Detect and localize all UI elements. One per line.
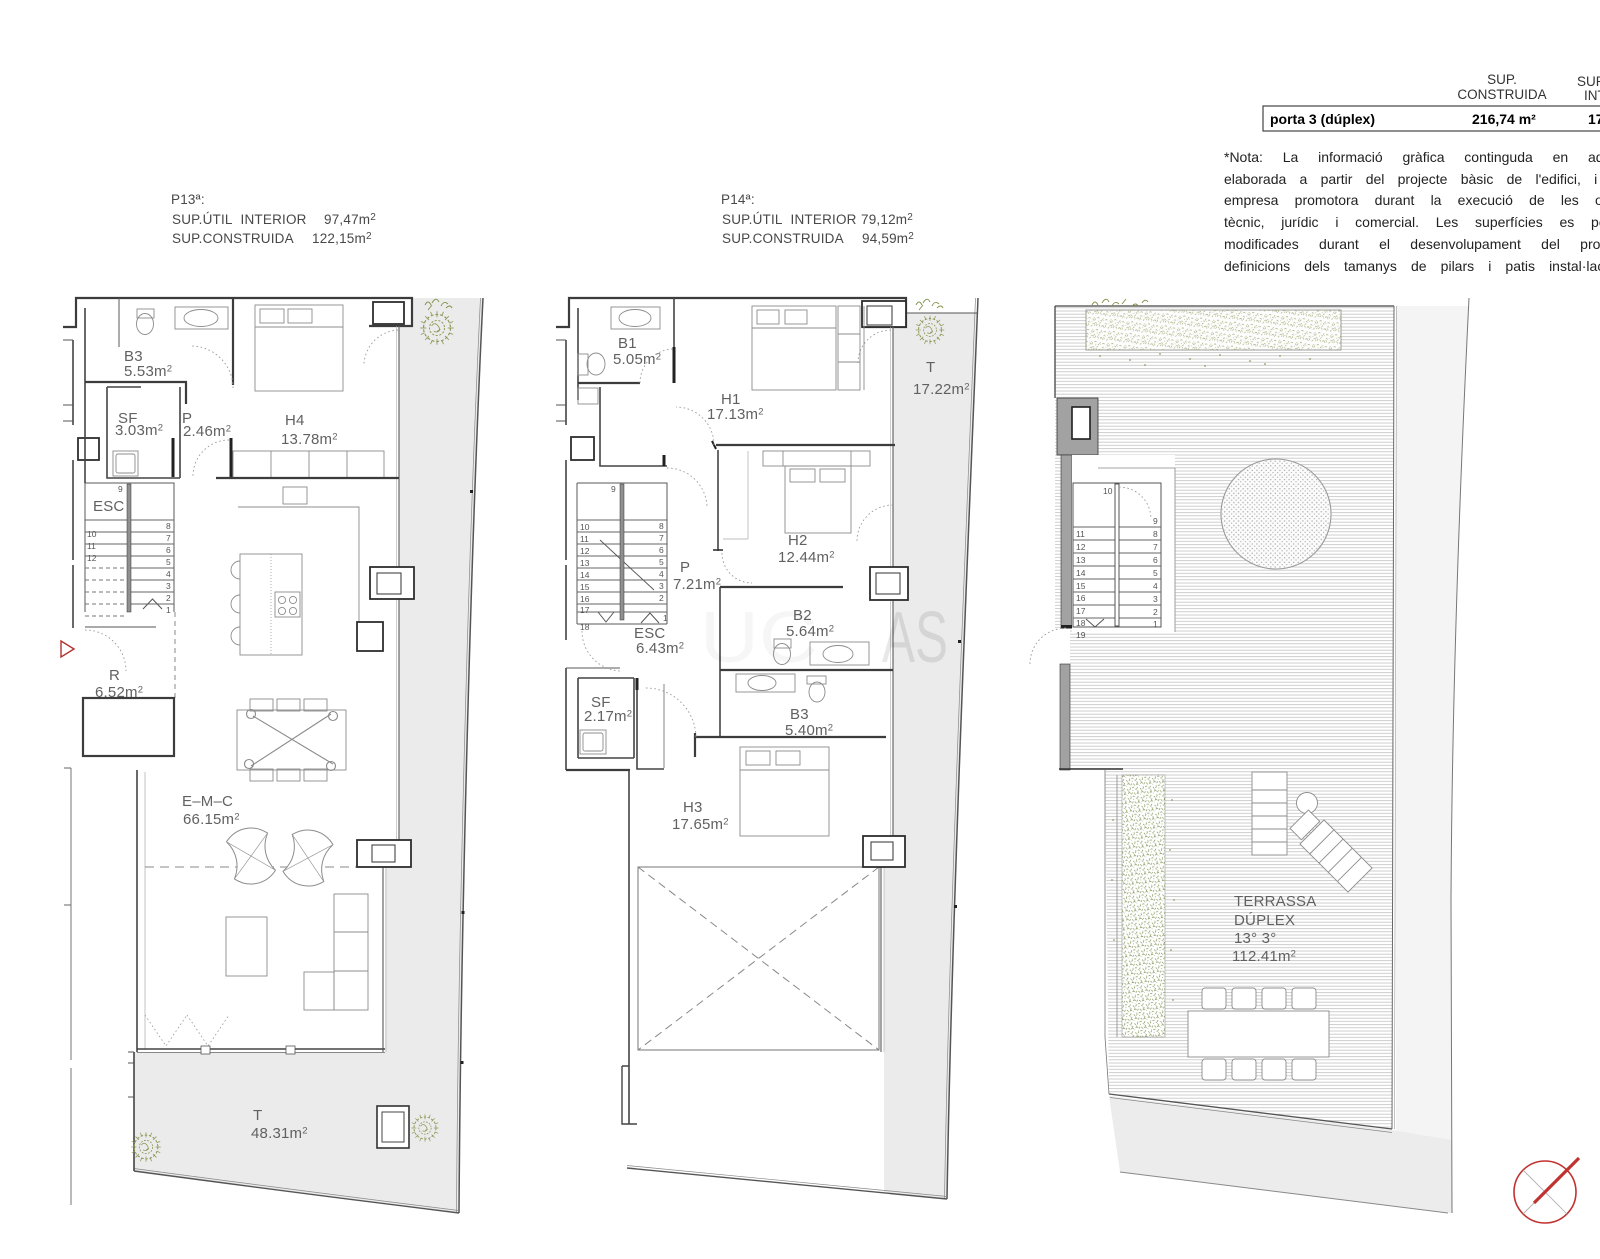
svg-text:97,47m2: 97,47m2 — [324, 212, 376, 227]
svg-text:5.40m2: 5.40m2 — [785, 722, 833, 739]
svg-text:P13ª:: P13ª: — [171, 192, 205, 207]
svg-text:8: 8 — [166, 521, 171, 531]
svg-text:SUP.: SUP. — [1577, 74, 1600, 89]
svg-text:B3: B3 — [790, 706, 809, 723]
svg-text:48.31m2: 48.31m2 — [251, 1125, 308, 1142]
svg-text:1: 1 — [166, 605, 171, 615]
svg-text:13: 13 — [1076, 555, 1086, 565]
svg-text:3: 3 — [1153, 594, 1158, 604]
svg-text:11: 11 — [580, 534, 589, 544]
svg-text:17.13m2: 17.13m2 — [707, 406, 764, 423]
svg-text:6.43m2: 6.43m2 — [636, 640, 684, 657]
svg-text:12: 12 — [87, 553, 97, 563]
svg-text:6: 6 — [1153, 555, 1158, 565]
svg-text:122,15m2: 122,15m2 — [312, 231, 372, 246]
svg-text:17: 17 — [1588, 111, 1600, 127]
svg-text:9: 9 — [118, 484, 123, 494]
svg-text:13.78m2: 13.78m2 — [281, 431, 338, 448]
svg-text:H4: H4 — [285, 412, 305, 429]
svg-text:7: 7 — [659, 533, 664, 543]
svg-text:2: 2 — [166, 593, 171, 603]
svg-text:18: 18 — [1076, 618, 1086, 628]
svg-text:2: 2 — [1153, 607, 1158, 617]
svg-text:10: 10 — [87, 529, 97, 539]
svg-text:SUP.ÚTIL INTERIOR: SUP.ÚTIL INTERIOR — [172, 212, 307, 227]
svg-text:14: 14 — [580, 570, 590, 580]
svg-text:SUP.ÚTIL INTERIOR: SUP.ÚTIL INTERIOR — [722, 212, 857, 227]
svg-text:17.22m2: 17.22m2 — [913, 381, 970, 398]
svg-text:12.44m2: 12.44m2 — [778, 549, 835, 566]
svg-text:16: 16 — [580, 594, 590, 604]
svg-text:E–M–C: E–M–C — [182, 793, 233, 810]
svg-text:10: 10 — [580, 522, 590, 532]
svg-text:15: 15 — [1076, 581, 1086, 591]
svg-text:9: 9 — [1153, 516, 1158, 526]
svg-text:7: 7 — [1153, 542, 1158, 552]
svg-text:3.03m2: 3.03m2 — [115, 422, 163, 439]
svg-text:8: 8 — [1153, 529, 1158, 539]
svg-text:DÚPLEX: DÚPLEX — [1234, 912, 1295, 929]
svg-text:11: 11 — [87, 541, 96, 551]
svg-text:UC: UC — [700, 598, 818, 678]
svg-text:12: 12 — [580, 546, 590, 556]
svg-text:3: 3 — [166, 581, 171, 591]
svg-text:17: 17 — [1076, 606, 1086, 616]
svg-text:4: 4 — [659, 569, 664, 579]
svg-text:11: 11 — [1076, 529, 1085, 539]
svg-text:12: 12 — [1076, 542, 1086, 552]
svg-text:ESC: ESC — [93, 498, 124, 515]
svg-text:H3: H3 — [683, 799, 703, 816]
svg-text:4: 4 — [1153, 581, 1158, 591]
svg-text:P: P — [680, 559, 690, 576]
svg-text:6: 6 — [659, 545, 664, 555]
svg-text:B1: B1 — [618, 335, 637, 352]
svg-text:SUP.: SUP. — [1487, 72, 1517, 87]
svg-text:H2: H2 — [788, 532, 808, 549]
svg-text:15: 15 — [580, 582, 590, 592]
svg-text:7.21m2: 7.21m2 — [673, 576, 721, 593]
svg-text:2.46m2: 2.46m2 — [183, 423, 231, 440]
svg-text:P14ª:: P14ª: — [721, 192, 755, 207]
svg-text:4: 4 — [166, 569, 171, 579]
svg-text:10: 10 — [1103, 486, 1113, 496]
svg-text:6: 6 — [166, 545, 171, 555]
svg-text:3: 3 — [659, 581, 664, 591]
svg-text:6.52m2: 6.52m2 — [95, 684, 143, 701]
svg-text:17.65m2: 17.65m2 — [672, 816, 729, 833]
svg-text:T: T — [926, 359, 935, 376]
svg-text:79,12m2: 79,12m2 — [861, 212, 913, 227]
svg-text:112.41m2: 112.41m2 — [1232, 948, 1296, 965]
svg-text:5: 5 — [1153, 568, 1158, 578]
svg-text:SUP.CONSTRUIDA: SUP.CONSTRUIDA — [722, 231, 844, 246]
svg-text:7: 7 — [166, 533, 171, 543]
svg-text:19: 19 — [1076, 630, 1086, 640]
svg-text:1: 1 — [663, 613, 668, 623]
svg-text:2: 2 — [659, 593, 664, 603]
svg-text:66.15m2: 66.15m2 — [183, 811, 240, 828]
svg-text:TERRASSA: TERRASSA — [1234, 893, 1316, 910]
svg-text:8: 8 — [659, 521, 664, 531]
svg-text:9: 9 — [611, 484, 616, 494]
svg-text:5: 5 — [659, 557, 664, 567]
svg-text:INT: INT — [1584, 88, 1600, 103]
svg-text:SUP.CONSTRUIDA: SUP.CONSTRUIDA — [172, 231, 294, 246]
svg-text:2.17m2: 2.17m2 — [584, 708, 632, 725]
svg-text:AS: AS — [882, 598, 948, 678]
svg-text:5.05m2: 5.05m2 — [613, 351, 661, 368]
svg-text:14: 14 — [1076, 568, 1086, 578]
svg-text:13: 13 — [580, 558, 590, 568]
svg-text:16: 16 — [1076, 593, 1086, 603]
svg-text:17: 17 — [580, 605, 590, 615]
svg-text:R: R — [109, 667, 120, 684]
svg-text:216,74 m²: 216,74 m² — [1472, 111, 1536, 127]
svg-text:18: 18 — [580, 622, 590, 632]
svg-text:5: 5 — [166, 557, 171, 567]
svg-text:5.53m2: 5.53m2 — [124, 363, 172, 380]
svg-text:porta 3 (dúplex): porta 3 (dúplex) — [1270, 111, 1375, 127]
svg-text:94,59m2: 94,59m2 — [862, 231, 914, 246]
svg-text:1: 1 — [1153, 619, 1158, 629]
svg-text:CONSTRUIDA: CONSTRUIDA — [1457, 87, 1546, 102]
svg-text:T: T — [253, 1107, 262, 1124]
svg-text:13° 3°: 13° 3° — [1234, 930, 1276, 947]
